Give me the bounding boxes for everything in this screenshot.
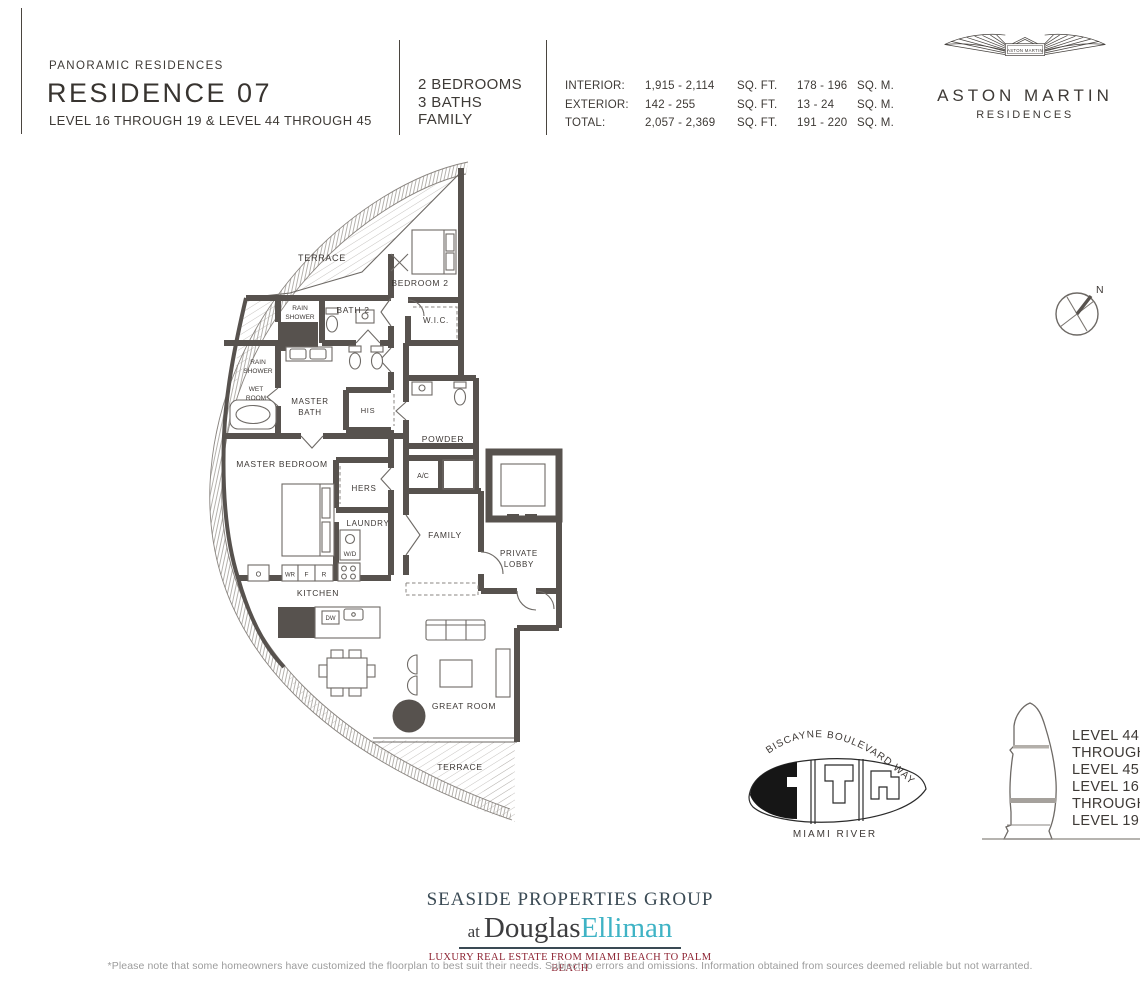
broker-douglas: Douglas xyxy=(484,912,581,944)
lower-level-band xyxy=(1010,798,1056,803)
room-label-master-bedroom: MASTER BEDROOM xyxy=(236,459,328,469)
site-map: BISCAYNE BOULEVARD WAY MIAMI RIVER xyxy=(733,703,937,849)
upper-levels-label: LEVEL 44 THROUGH LEVEL 45 xyxy=(1072,728,1140,779)
broker-at: at xyxy=(468,922,480,941)
area-sqft: 1,915 - 2,114 xyxy=(645,77,737,96)
broker-rule xyxy=(459,947,681,949)
compass-north-label: N xyxy=(1096,284,1104,296)
room-label-great-room: GREAT ROOM xyxy=(432,701,496,711)
floorplan: TERRACE BEDROOM 2 RAIN SHOWER BATH 2 W.I… xyxy=(60,150,580,840)
area-sqft-unit: SQ. FT. xyxy=(737,96,797,115)
area-table: INTERIOR: 1,915 - 2,114 SQ. FT. 178 - 19… xyxy=(565,77,905,133)
compass-icon: N xyxy=(1050,280,1114,344)
room-label-terrace-bottom: TERRACE xyxy=(437,762,483,772)
appliance-label-o: O xyxy=(256,572,262,579)
area-label: INTERIOR: xyxy=(565,77,645,96)
storage-closet xyxy=(443,460,474,489)
broker-group-name: SEASIDE PROPERTIES GROUP xyxy=(420,889,720,911)
area-sqm-unit: SQ. M. xyxy=(857,96,905,115)
room-label-bedroom2: BEDROOM 2 xyxy=(391,278,448,288)
appliance-label-r: R xyxy=(322,572,327,579)
kitchen-counter-block xyxy=(278,607,315,638)
room-label-wd: W/D xyxy=(344,551,357,558)
collection-name: PANORAMIC RESIDENCES xyxy=(49,60,224,72)
room-label-kitchen: KITCHEN xyxy=(297,588,339,598)
disclaimer-text: *Please note that some homeowners have c… xyxy=(0,960,1140,972)
broker-brand-name: at DouglasElliman xyxy=(420,912,720,945)
room-label-wic: W.I.C. xyxy=(423,316,449,325)
wings-badge-text: ASTON MARTIN xyxy=(1007,48,1043,53)
aston-martin-wings-icon: ASTON MARTIN xyxy=(940,26,1110,74)
area-sqm-unit: SQ. M. xyxy=(857,114,905,133)
room-label-lobby-l2: LOBBY xyxy=(504,560,534,569)
appliance-label-dw: DW xyxy=(326,616,336,622)
appliance-label-f: F xyxy=(305,572,309,579)
room-label-rain1-l2: SHOWER xyxy=(285,314,315,321)
room-label-powder: POWDER xyxy=(422,434,464,444)
area-row-interior: INTERIOR: 1,915 - 2,114 SQ. FT. 178 - 19… xyxy=(565,77,905,96)
brand-name: ASTON MARTIN xyxy=(920,86,1130,106)
header-left-rule xyxy=(21,8,22,134)
area-sqft-unit: SQ. FT. xyxy=(737,77,797,96)
area-sqft-unit: SQ. FT. xyxy=(737,114,797,133)
room-label-rain1-l1: RAIN xyxy=(292,305,308,312)
room-label-rain2-l2: SHOWER xyxy=(243,368,273,375)
lower-levels-label: LEVEL 16 THROUGH LEVEL 19 xyxy=(1072,779,1140,830)
room-label-ac: A/C xyxy=(417,473,429,480)
area-sqm: 191 - 220 xyxy=(797,114,857,133)
brochure-page: PANORAMIC RESIDENCES RESIDENCE 07 LEVEL … xyxy=(0,0,1140,986)
area-row-total: TOTAL: 2,057 - 2,369 SQ. FT. 191 - 220 S… xyxy=(565,114,905,133)
room-label-rain2-l1: RAIN xyxy=(250,359,266,366)
appliance-label-wr: WR xyxy=(285,573,296,579)
feature-baths: 3 BATHS xyxy=(418,94,522,112)
room-label-laundry: LAUNDRY xyxy=(347,519,390,528)
room-label-mbath-l2: BATH xyxy=(298,408,322,417)
room-label-wet-l2: ROOM xyxy=(246,395,266,402)
feature-family: FAMILY xyxy=(418,111,522,129)
header-divider-2 xyxy=(546,40,547,135)
header-divider-1 xyxy=(399,40,400,135)
river-label: MIAMI RIVER xyxy=(793,829,877,840)
room-label-bath2: BATH 2 xyxy=(336,305,369,315)
tower-profile xyxy=(1004,703,1056,839)
area-row-exterior: EXTERIOR: 142 - 255 SQ. FT. 13 - 24 SQ. … xyxy=(565,96,905,115)
area-sqft: 2,057 - 2,369 xyxy=(645,114,737,133)
room-label-lobby-l1: PRIVATE xyxy=(500,549,538,558)
page-title: RESIDENCE 07 xyxy=(47,78,272,109)
room-label-family: FAMILY xyxy=(428,530,462,540)
feature-list: 2 BEDROOMS 3 BATHS FAMILY xyxy=(418,76,522,129)
area-sqft: 142 - 255 xyxy=(645,96,737,115)
round-table xyxy=(393,700,426,733)
room-label-hers: HERS xyxy=(351,484,376,493)
broker-elliman: Elliman xyxy=(581,912,673,944)
feature-bedrooms: 2 BEDROOMS xyxy=(418,76,522,94)
room-label-mbath-l1: MASTER xyxy=(291,397,329,406)
levels-subtitle: LEVEL 16 THROUGH 19 & LEVEL 44 THROUGH 4… xyxy=(49,113,372,128)
area-sqm: 178 - 196 xyxy=(797,77,857,96)
area-label: EXTERIOR: xyxy=(565,96,645,115)
room-label-his: HIS xyxy=(361,406,376,415)
area-sqm-unit: SQ. M. xyxy=(857,77,905,96)
brand-sub: RESIDENCES xyxy=(920,109,1130,121)
room-label-wet-l1: WET xyxy=(249,386,263,393)
area-sqm: 13 - 24 xyxy=(797,96,857,115)
area-label: TOTAL: xyxy=(565,114,645,133)
room-label-terrace-top: TERRACE xyxy=(298,253,346,263)
upper-level-band xyxy=(1013,745,1049,749)
